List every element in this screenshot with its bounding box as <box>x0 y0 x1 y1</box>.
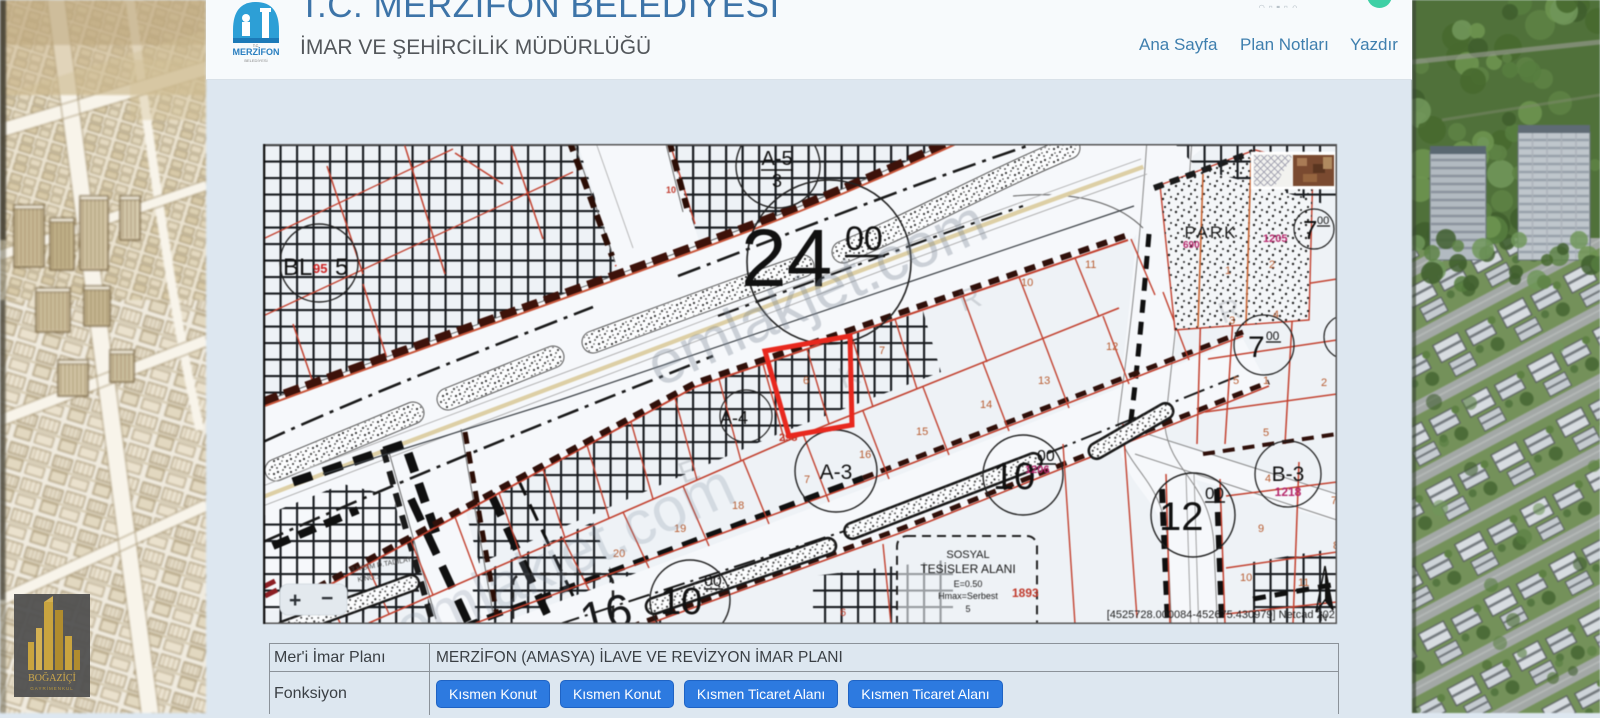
svg-text:BL: BL <box>283 254 312 281</box>
svg-text:00: 00 <box>704 573 722 590</box>
svg-text:BELEDİYESİ: BELEDİYESİ <box>244 58 267 63</box>
svg-text:1: 1 <box>1225 265 1231 277</box>
svg-text:+: + <box>289 589 301 612</box>
svg-text:B-3: B-3 <box>1272 463 1305 486</box>
svg-text:14: 14 <box>980 399 992 411</box>
svg-text:13: 13 <box>1038 375 1050 387</box>
svg-text:16: 16 <box>859 449 871 461</box>
svg-text:1205: 1205 <box>1263 233 1287 245</box>
svg-text:TESİSLER ALANI: TESİSLER ALANI <box>920 562 1015 576</box>
svg-text:A-4: A-4 <box>720 408 748 428</box>
svg-text:00: 00 <box>1317 215 1329 227</box>
svg-text:2: 2 <box>1269 259 1275 271</box>
svg-text:[4525728.000084-452675.430979]: [4525728.000084-452675.430979] Netcad 20… <box>1107 609 1337 621</box>
svg-text:10: 10 <box>1240 572 1252 584</box>
svg-text:1206: 1206 <box>1025 464 1049 476</box>
svg-text:1893: 1893 <box>1012 586 1039 600</box>
svg-text:5: 5 <box>965 604 970 614</box>
svg-text:690: 690 <box>1183 240 1200 251</box>
svg-text:12: 12 <box>1106 341 1118 353</box>
svg-text:5: 5 <box>1233 375 1239 387</box>
svg-text:1: 1 <box>1263 375 1269 387</box>
svg-text:A-5: A-5 <box>761 148 792 170</box>
svg-text:10: 10 <box>993 456 1035 498</box>
svg-text:7: 7 <box>879 345 885 357</box>
svg-text:7: 7 <box>804 474 810 486</box>
svg-text:−: − <box>321 587 333 610</box>
svg-text:6: 6 <box>803 375 809 387</box>
svg-text:11: 11 <box>1298 577 1309 589</box>
svg-text:12: 12 <box>1159 495 1204 539</box>
svg-text:95: 95 <box>313 261 327 276</box>
svg-text:BOĞAZİÇİ: BOĞAZİÇİ <box>28 672 76 684</box>
svg-text:4: 4 <box>1273 309 1279 321</box>
svg-text:1218: 1218 <box>1275 485 1302 499</box>
svg-text:10: 10 <box>1021 277 1033 289</box>
svg-text:Hmax=Serbest: Hmax=Serbest <box>938 591 998 601</box>
svg-text:7: 7 <box>1248 331 1265 364</box>
svg-text:A-3: A-3 <box>820 461 853 484</box>
svg-text:5: 5 <box>1263 427 1269 439</box>
svg-text:00: 00 <box>1266 329 1280 343</box>
svg-text:10: 10 <box>660 581 702 623</box>
svg-text:GAYRİMENKUL: GAYRİMENKUL <box>30 685 73 691</box>
svg-text:2: 2 <box>1321 377 1327 389</box>
svg-text:3: 3 <box>772 171 782 191</box>
svg-text:4: 4 <box>1265 473 1271 485</box>
svg-text:6: 6 <box>840 607 846 619</box>
svg-text:MERZİFON: MERZİFON <box>233 47 280 57</box>
svg-text:7: 7 <box>1303 215 1317 245</box>
svg-text:11: 11 <box>1085 259 1096 271</box>
svg-text:00: 00 <box>1037 448 1055 465</box>
svg-text:15: 15 <box>916 426 928 438</box>
svg-text:10: 10 <box>666 185 676 195</box>
svg-text:SOSYAL: SOSYAL <box>946 549 989 561</box>
svg-text:9: 9 <box>1258 523 1264 535</box>
svg-text:E=0.50: E=0.50 <box>954 579 983 589</box>
svg-text:00: 00 <box>1205 484 1224 503</box>
svg-text:5: 5 <box>335 254 348 281</box>
svg-text:3: 3 <box>1229 315 1235 327</box>
